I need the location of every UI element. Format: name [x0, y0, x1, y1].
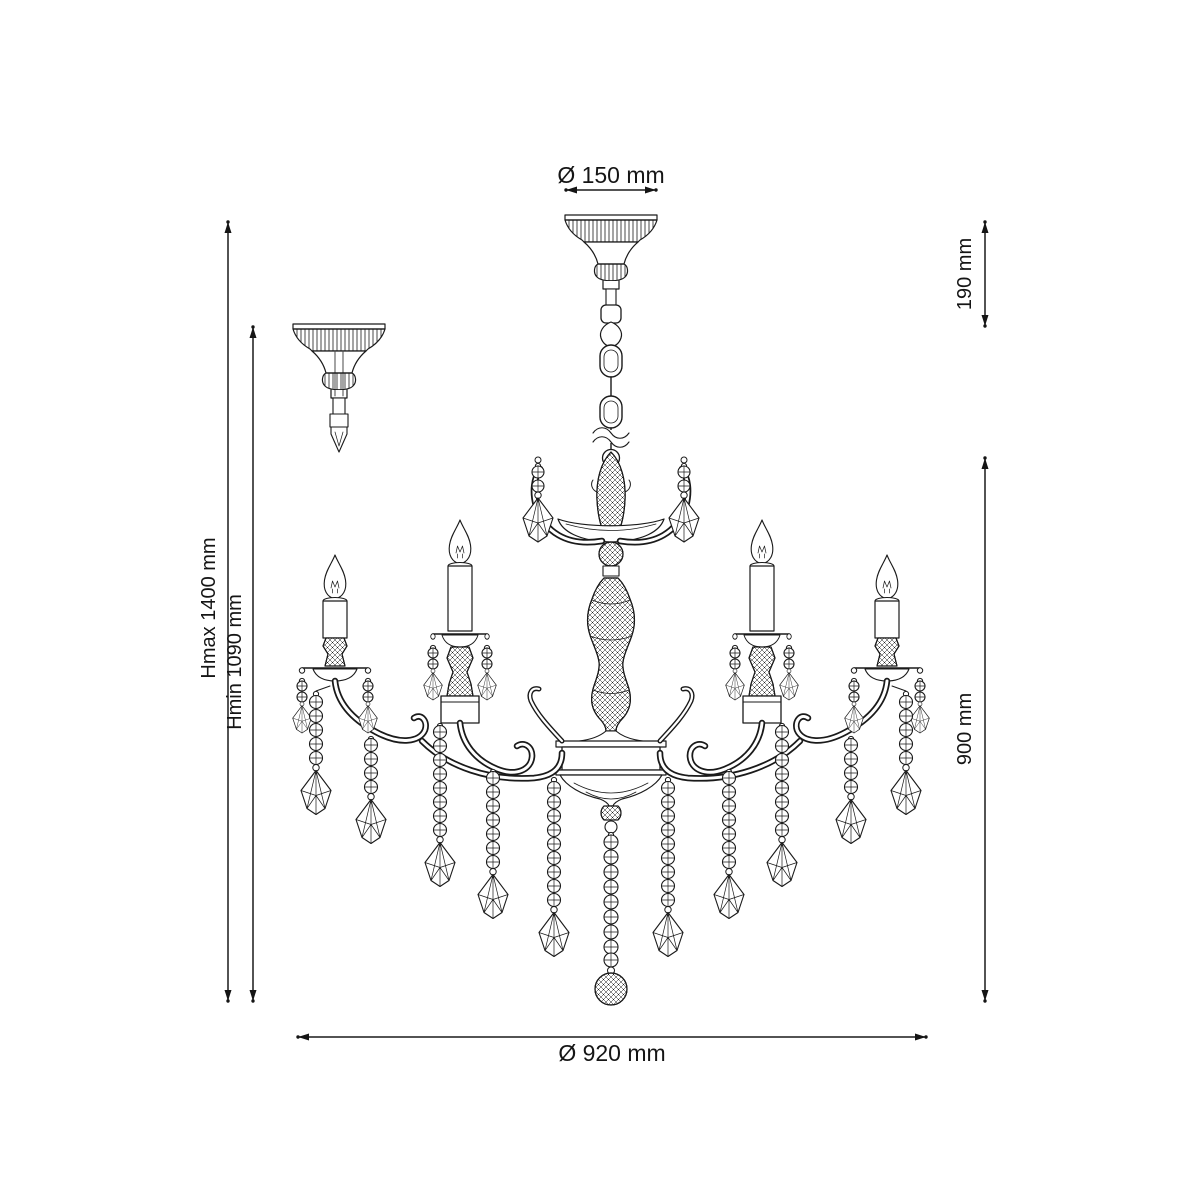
suspension-chain [591, 289, 631, 450]
bead-strand [478, 645, 497, 700]
dimension-bottom-diameter: Ø 920 mm [296, 1034, 927, 1067]
center-bead-strand [595, 832, 627, 1005]
bead-strand [539, 777, 569, 956]
dimension-hmin: Hmin 1090 mm [224, 325, 257, 1002]
right-side-mirror [620, 457, 929, 957]
hmin-label: Hmin 1090 mm [224, 594, 246, 730]
ceiling-canopy [565, 215, 657, 289]
top-diameter-label: Ø 150 mm [557, 162, 664, 188]
center-drum [556, 741, 666, 775]
bottom-diameter-label: Ø 920 mm [558, 1040, 665, 1066]
bead-strand [523, 463, 553, 542]
bead-strand [293, 678, 312, 733]
canopy-height-label: 190 mm [954, 238, 976, 310]
bead-strand [478, 769, 508, 918]
technical-drawing: Ø 150 mm Hmax 1400 mm Hmin 1090 mm [0, 0, 1200, 1200]
bead-strand [424, 645, 443, 700]
bead-strands [293, 463, 569, 956]
dimension-top-diameter: Ø 150 mm [557, 162, 664, 194]
hmax-label: Hmax 1400 mm [198, 537, 220, 678]
bead-strand [356, 736, 386, 843]
dimension-canopy-height: 190 mm [954, 220, 989, 327]
bead-strand [595, 832, 627, 1005]
dimension-body-height: 900 mm [954, 456, 989, 1002]
bottom-bowl [560, 775, 662, 833]
spare-canopy-detail [293, 324, 385, 452]
body-height-label: 900 mm [954, 693, 976, 765]
center-column [558, 450, 664, 742]
bead-strand [359, 678, 378, 733]
outer-candle [299, 555, 370, 691]
